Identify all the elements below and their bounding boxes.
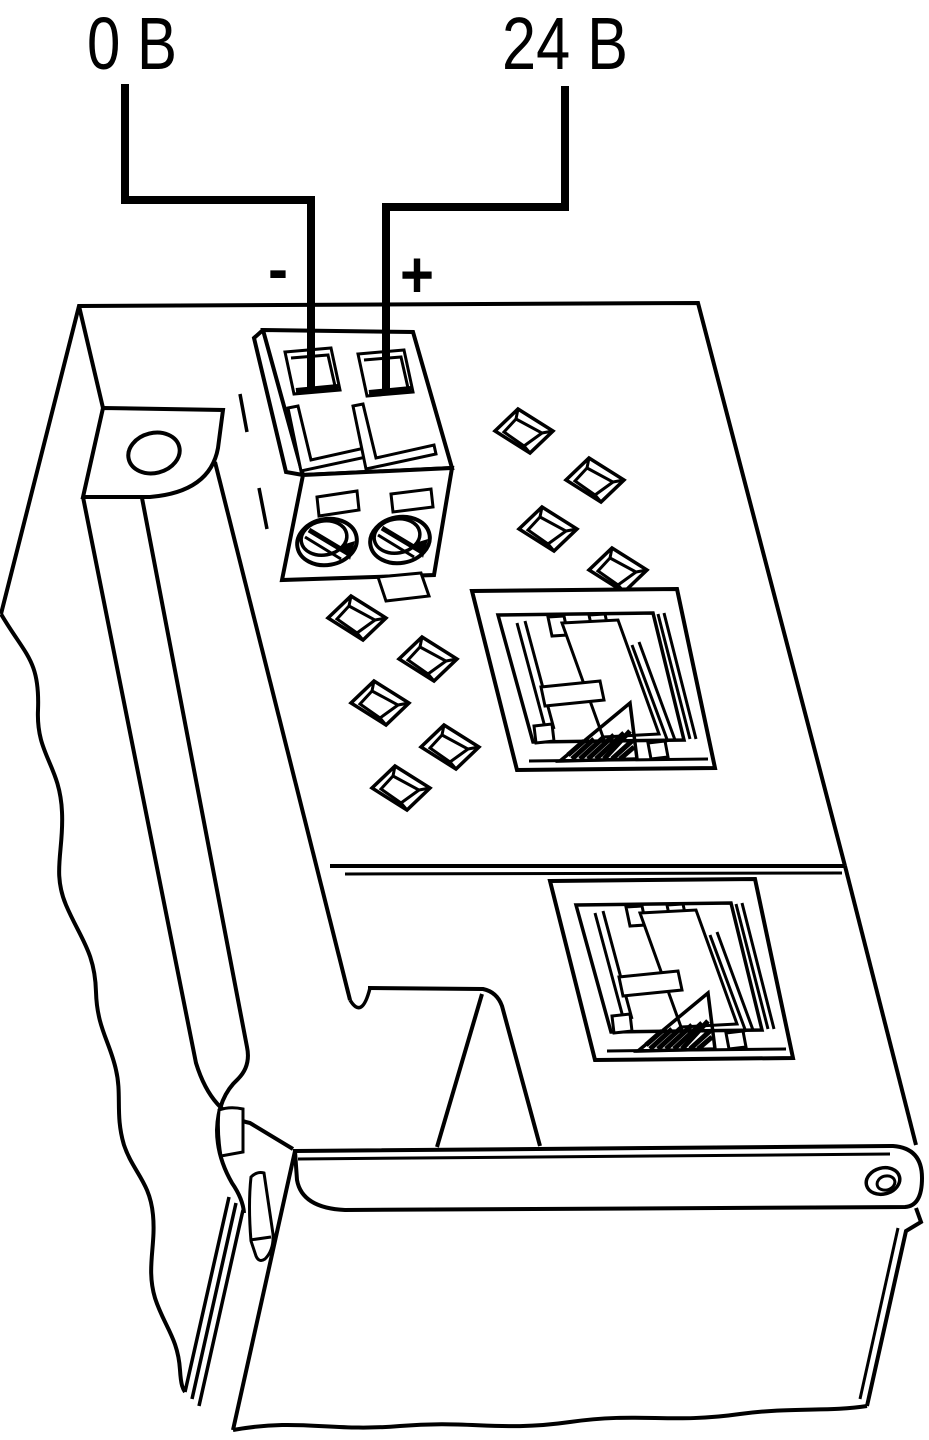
terminal-window-left bbox=[317, 491, 359, 516]
label-minus: - bbox=[268, 233, 288, 305]
label-plus: + bbox=[400, 237, 434, 311]
front-step-edge-inner bbox=[345, 873, 842, 874]
label-0v: 0 В bbox=[87, 2, 177, 85]
rj45-port-lower bbox=[550, 879, 793, 1060]
front-panel-strip bbox=[295, 1146, 922, 1210]
rj45-port-upper bbox=[472, 589, 715, 770]
isometric-wiring-figure: 0 В 24 В - + bbox=[0, 0, 929, 1440]
clip-tab bbox=[218, 1108, 243, 1156]
wiring-diagram: 0 В 24 В - + bbox=[0, 0, 929, 1440]
background bbox=[0, 0, 929, 1440]
terminal-bottom-tab bbox=[378, 573, 429, 601]
label-24v: 24 В bbox=[502, 2, 628, 85]
terminal-window-right bbox=[391, 489, 433, 512]
